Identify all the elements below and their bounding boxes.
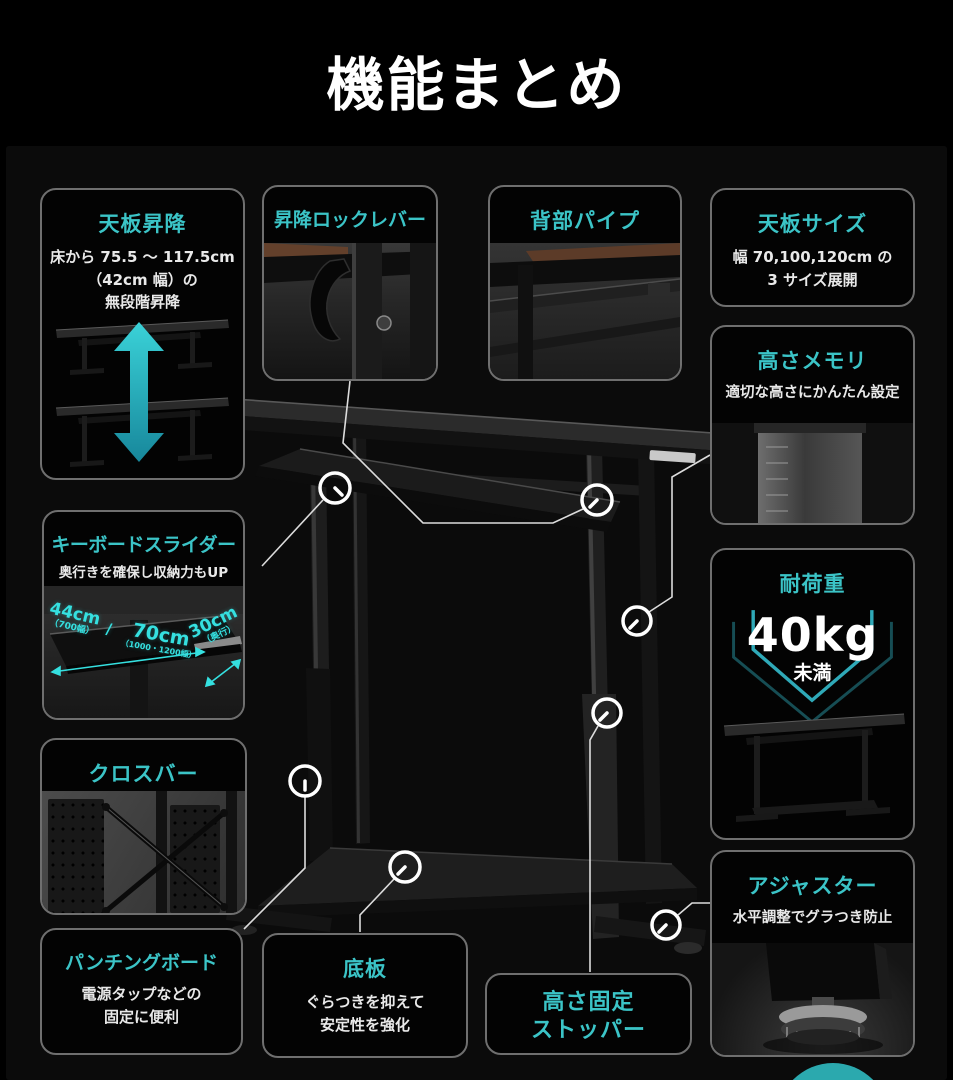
keyboard-slider-photo: 44cm （700幅） / 70cm （1000・1200幅） 30cm （奥行… [44,586,243,718]
feature-summary-page: 機能まとめ [0,0,953,1080]
back-pipe-photo [490,243,680,379]
feature-box-crossbar: クロスバー [40,738,247,915]
feature-box-top-size: 天板サイズ 幅 70,100,120cm の 3 サイズ展開 [710,188,915,307]
line-adjuster [678,903,710,915]
feature-title: 天板昇降 [42,208,243,238]
cross-bars [42,791,245,913]
lock-lever-photo [264,243,436,379]
height-memory-photo [712,423,913,523]
feature-box-keyboard-slider: キーボードスライダー 奥行きを確保し収納力もUP [42,510,245,720]
feature-desc: 電源タップなどの 固定に便利 [42,983,241,1028]
feature-box-height-memory: 高さメモリ 適切な高さにかんたん設定 [710,325,915,525]
feature-box-back-pipe: 背部パイプ [488,185,682,381]
feature-desc: 水平調整でグラつき防止 [712,908,913,930]
feature-box-load-capacity: 耐荷重 40kg 未満 [710,548,915,840]
page-title: 機能まとめ [0,38,953,122]
feature-desc: ぐらつきを抑えて 安定性を強化 [264,991,466,1036]
feature-desc: 奥行きを確保し収納力もUP [44,563,243,583]
load-desk-illustration [712,708,913,838]
feature-box-bottom-plate: 底板 ぐらつきを抑えて 安定性を強化 [262,933,468,1058]
feature-title: 底板 [264,953,466,983]
feature-title: クロスバー [42,758,245,788]
feature-desc: 幅 70,100,120cm の 3 サイズ展開 [712,246,913,291]
feature-title: キーボードスライダー [44,530,243,557]
feature-box-top-lift: 天板昇降 床から 75.5 ～ 117.5cm （42cm 幅）の 無段階昇降 [40,188,245,480]
feature-title: アジャスター [712,870,913,900]
feature-title: 高さ固定 ストッパー [487,989,690,1044]
load-value: 40kg [712,608,913,662]
feature-desc: 床から 75.5 ～ 117.5cm （42cm 幅）の 無段階昇降 [42,246,243,314]
feature-title: 昇降ロックレバー [264,205,436,232]
feature-title: 背部パイプ [490,205,680,235]
feature-box-height-stopper: 高さ固定 ストッパー [485,973,692,1055]
crossbar-photo [42,791,245,913]
desk-illustration [215,398,755,954]
lift-range-illustration [42,318,243,478]
feature-title: 耐荷重 [712,568,913,598]
feature-title: 天板サイズ [712,208,913,238]
feature-box-lock-lever: 昇降ロックレバー [262,185,438,381]
feature-box-adjuster: アジャスター 水平調整でグラつき防止 [710,850,915,1057]
feature-box-punching-board: パンチングボード 電源タップなどの 固定に便利 [40,928,243,1055]
adjuster-photo [712,943,913,1055]
load-unit-note: 未満 [712,658,913,685]
feature-desc: 適切な高さにかんたん設定 [712,383,913,405]
up-down-arrow [114,322,164,462]
line-height-memory [649,455,710,612]
feature-title: 高さメモリ [712,345,913,375]
feature-title: パンチングボード [42,948,241,975]
